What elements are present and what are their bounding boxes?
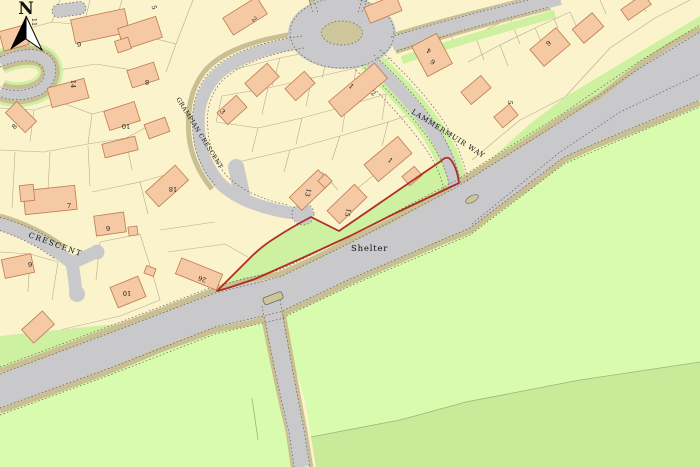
building — [19, 184, 35, 201]
house-number: 10 — [122, 122, 130, 130]
map-canvas: GRAMPIAN CRESCENT LAMMERMUIR WAY CRESCEN… — [0, 0, 700, 467]
site-plan-map: GRAMPIAN CRESCENT LAMMERMUIR WAY CRESCEN… — [0, 0, 700, 467]
house-number: 9 — [28, 261, 32, 269]
building — [128, 226, 138, 236]
poi-label-shelter: Shelter — [351, 244, 388, 254]
house-number: 6 — [77, 40, 81, 48]
house-number: 7 — [67, 202, 71, 210]
house-number: 9 — [106, 225, 110, 233]
house-number: 11 — [30, 18, 38, 26]
house-number: 8 — [145, 78, 149, 86]
house-number: 18 — [169, 185, 177, 193]
house-number: 10 — [123, 289, 131, 297]
house-number: 14 — [69, 80, 77, 88]
